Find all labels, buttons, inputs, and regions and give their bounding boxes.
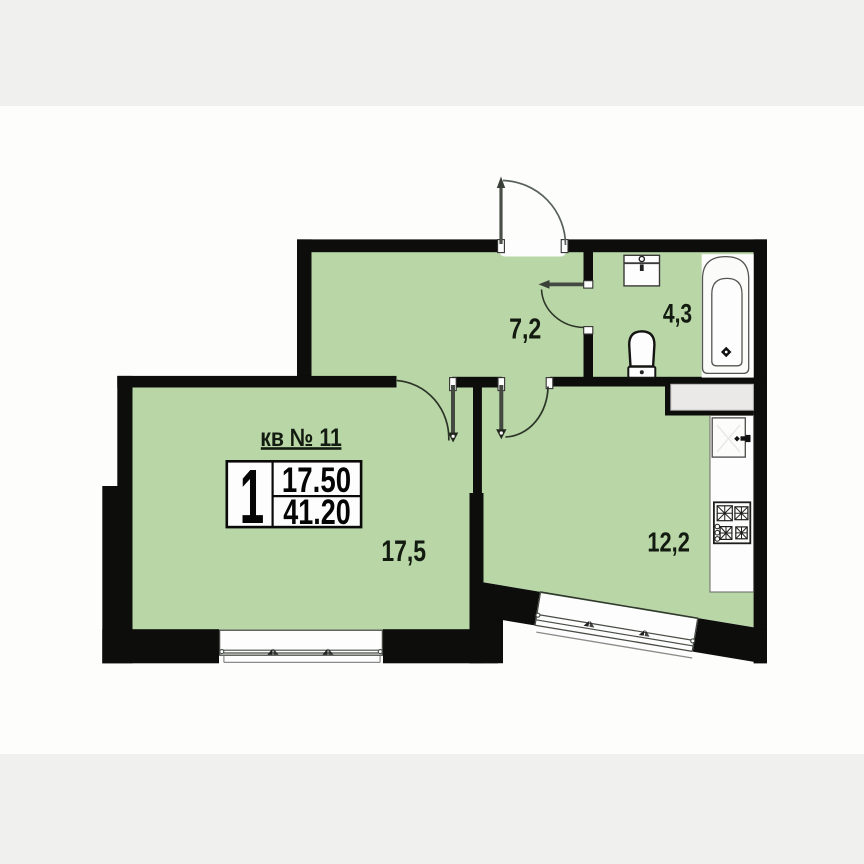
svg-text:7,2: 7,2 [509,312,541,345]
svg-text:41.20: 41.20 [283,492,350,531]
svg-text:кв № 11: кв № 11 [260,423,342,451]
svg-text:17,5: 17,5 [381,534,426,567]
svg-text:1: 1 [240,454,264,540]
svg-text:12,2: 12,2 [647,527,689,558]
svg-text:4,3: 4,3 [663,299,692,329]
